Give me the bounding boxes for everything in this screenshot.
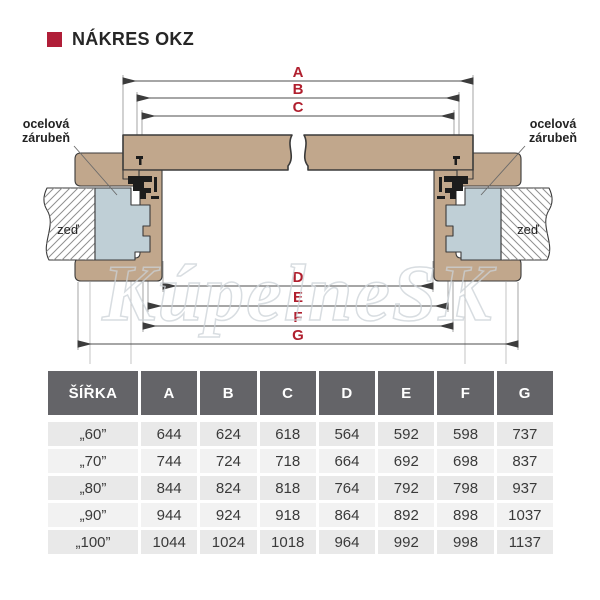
section-title: NÁKRES OKZ: [47, 29, 194, 50]
value-cell: 818: [260, 476, 316, 500]
door-frame-drawing: A B C D E F G ocelová zárubeň ocelová zá…: [0, 58, 600, 370]
width-label-cell: „100”: [48, 530, 138, 554]
value-cell: 798: [437, 476, 493, 500]
value-cell: 864: [319, 503, 375, 527]
value-cell: 1044: [141, 530, 197, 554]
table-header-row: ŠÍŘKA A B C D E F G: [48, 371, 553, 415]
width-label-cell: „60”: [48, 422, 138, 446]
value-cell: 1024: [200, 530, 256, 554]
value-cell: 792: [378, 476, 434, 500]
page-title: NÁKRES OKZ: [72, 29, 194, 50]
value-cell: 1137: [497, 530, 553, 554]
value-cell: 992: [378, 530, 434, 554]
value-cell: 824: [200, 476, 256, 500]
callout-text-line2: zárubeň: [529, 131, 577, 145]
value-cell: 1037: [497, 503, 553, 527]
dimension-label-B: B: [293, 81, 304, 98]
value-cell: 937: [497, 476, 553, 500]
dimension-label-C: C: [293, 99, 304, 116]
callout-text-line1: ocelová: [23, 117, 70, 131]
table-header-cell-E: E: [378, 371, 434, 415]
value-cell: 744: [141, 449, 197, 473]
value-cell: 1018: [260, 530, 316, 554]
table-header-cell-F: F: [437, 371, 493, 415]
value-cell: 944: [141, 503, 197, 527]
value-cell: 598: [437, 422, 493, 446]
table-header-cell-sirka: ŠÍŘKA: [48, 371, 138, 415]
wall-label-right: zeď: [517, 222, 540, 237]
watermark-text: KúpelneSK: [101, 250, 496, 338]
value-cell: 918: [260, 503, 316, 527]
okz-datasheet-page: NÁKRES OKZ: [0, 0, 600, 600]
width-label-cell: „90”: [48, 503, 138, 527]
table-header-cell-C: C: [260, 371, 316, 415]
value-cell: 924: [200, 503, 256, 527]
value-cell: 618: [260, 422, 316, 446]
callout-text-line2: zárubeň: [22, 131, 70, 145]
value-cell: 892: [378, 503, 434, 527]
value-cell: 698: [437, 449, 493, 473]
wall-label-left: zeď: [57, 222, 80, 237]
width-label-cell: „70”: [48, 449, 138, 473]
value-cell: 964: [319, 530, 375, 554]
value-cell: 837: [497, 449, 553, 473]
title-bullet-icon: [47, 32, 62, 47]
value-cell: 718: [260, 449, 316, 473]
value-cell: 644: [141, 422, 197, 446]
table-header-cell-G: G: [497, 371, 553, 415]
dimension-label-A: A: [293, 64, 304, 81]
callout-text-line1: ocelová: [530, 117, 577, 131]
value-cell: 737: [497, 422, 553, 446]
table-header-cell-D: D: [319, 371, 375, 415]
value-cell: 844: [141, 476, 197, 500]
value-cell: 898: [437, 503, 493, 527]
table-header-cell-B: B: [200, 371, 256, 415]
width-label-cell: „80”: [48, 476, 138, 500]
table-body: „60” 644 624 618 564 592 598 737 „70” 74…: [48, 422, 553, 554]
value-cell: 592: [378, 422, 434, 446]
value-cell: 764: [319, 476, 375, 500]
value-cell: 564: [319, 422, 375, 446]
dimension-table: ŠÍŘKA A B C D E F G „60” 644 624 618 564…: [48, 371, 553, 554]
value-cell: 724: [200, 449, 256, 473]
value-cell: 692: [378, 449, 434, 473]
value-cell: 664: [319, 449, 375, 473]
table-header-cell-A: A: [141, 371, 197, 415]
value-cell: 624: [200, 422, 256, 446]
value-cell: 998: [437, 530, 493, 554]
